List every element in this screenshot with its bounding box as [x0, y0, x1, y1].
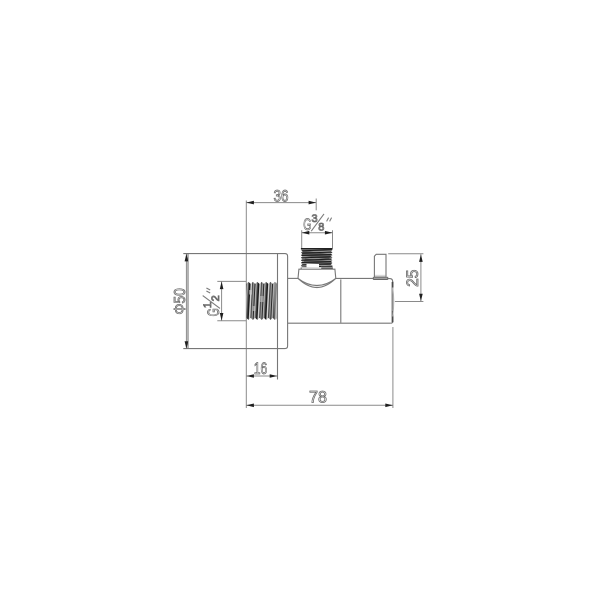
svg-text:2: 2 [210, 295, 222, 301]
svg-text:G: G [303, 216, 311, 234]
svg-text:G: G [205, 308, 223, 316]
svg-text:8: 8 [318, 221, 324, 233]
svg-text:25: 25 [404, 270, 422, 287]
svg-text:36: 36 [274, 187, 289, 206]
svg-text:Φ50: Φ50 [172, 288, 189, 315]
svg-text:16: 16 [254, 359, 268, 378]
svg-text:78: 78 [309, 387, 327, 406]
